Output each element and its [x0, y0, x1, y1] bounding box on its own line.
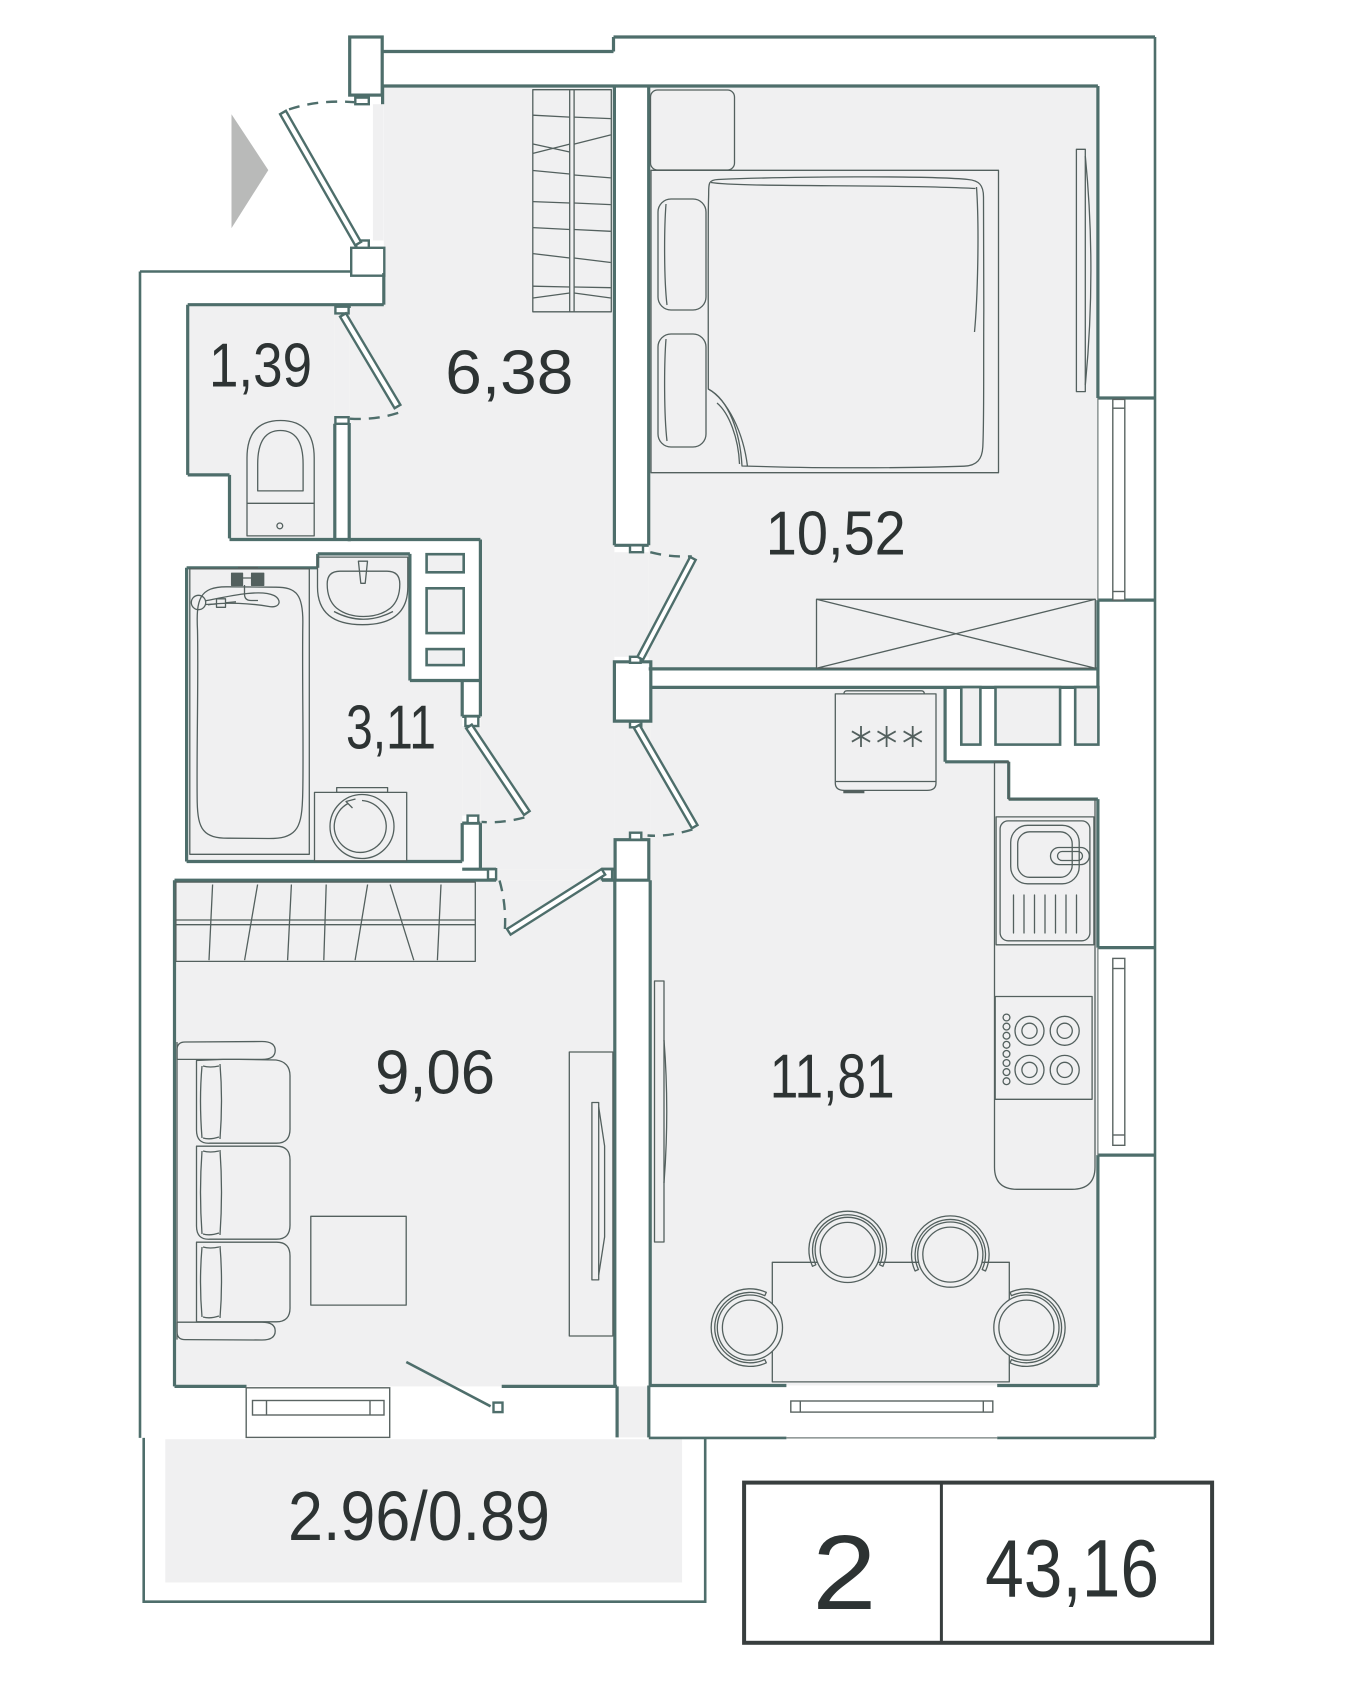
svg-text:10,52: 10,52	[766, 500, 906, 569]
svg-text:9,06: 9,06	[375, 1039, 495, 1108]
svg-text:1,39: 1,39	[209, 332, 312, 401]
svg-text:2: 2	[812, 1514, 876, 1632]
svg-text:2.96/0.89: 2.96/0.89	[288, 1477, 550, 1555]
svg-text:3,11: 3,11	[346, 694, 436, 763]
svg-text:11,81: 11,81	[770, 1043, 895, 1112]
svg-text:6,38: 6,38	[445, 339, 573, 408]
svg-text:43,16: 43,16	[985, 1523, 1159, 1614]
